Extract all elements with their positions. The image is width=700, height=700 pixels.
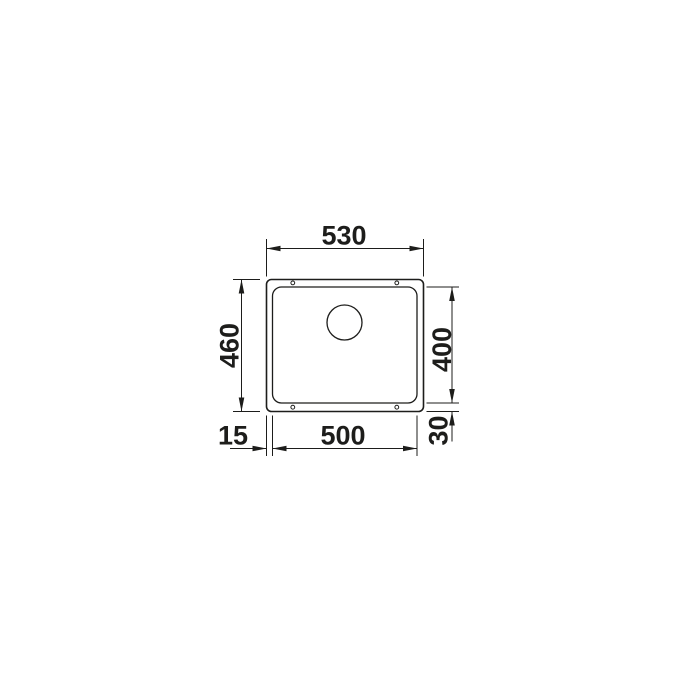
dim-rim-offset-left: 15 <box>218 416 273 457</box>
mounting-hole-top-right <box>395 281 399 285</box>
dim-label-rim-offset-bottom: 30 <box>424 415 454 445</box>
dim-overall-depth: 460 <box>215 280 261 412</box>
dim-bowl-width: 500 <box>273 416 418 457</box>
drain-hole <box>327 305 362 340</box>
arrowhead-up-icon <box>449 287 455 301</box>
dim-rim-offset-bottom: 30 <box>424 412 460 446</box>
arrowhead-right-icon <box>403 446 417 452</box>
dim-label-bowl-width: 500 <box>320 421 365 451</box>
arrowhead-right-icon <box>253 446 267 452</box>
dim-label-rim-offset-left: 15 <box>218 421 248 451</box>
arrowhead-right-icon <box>410 246 424 252</box>
dim-bowl-depth: 400 <box>427 287 460 403</box>
sink-outer-rim <box>267 280 424 412</box>
dim-label-bowl-depth: 400 <box>427 327 457 372</box>
sink-dimension-drawing: 530 460 400 30 <box>0 0 700 700</box>
sink-outline-group <box>267 280 424 412</box>
dim-label-overall-width: 530 <box>321 221 366 251</box>
dim-overall-width: 530 <box>267 221 424 277</box>
mounting-hole-bottom-left <box>291 405 295 409</box>
dim-label-overall-depth: 460 <box>215 323 245 368</box>
technical-drawing-page: 530 460 400 30 <box>0 0 700 700</box>
mounting-hole-bottom-right <box>395 405 399 409</box>
arrowhead-up-icon <box>239 280 245 294</box>
mounting-hole-top-left <box>291 281 295 285</box>
arrowhead-left-icon <box>273 446 287 452</box>
arrowhead-left-icon <box>267 246 281 252</box>
arrowhead-down-icon <box>449 389 455 403</box>
arrowhead-down-icon <box>239 398 245 412</box>
